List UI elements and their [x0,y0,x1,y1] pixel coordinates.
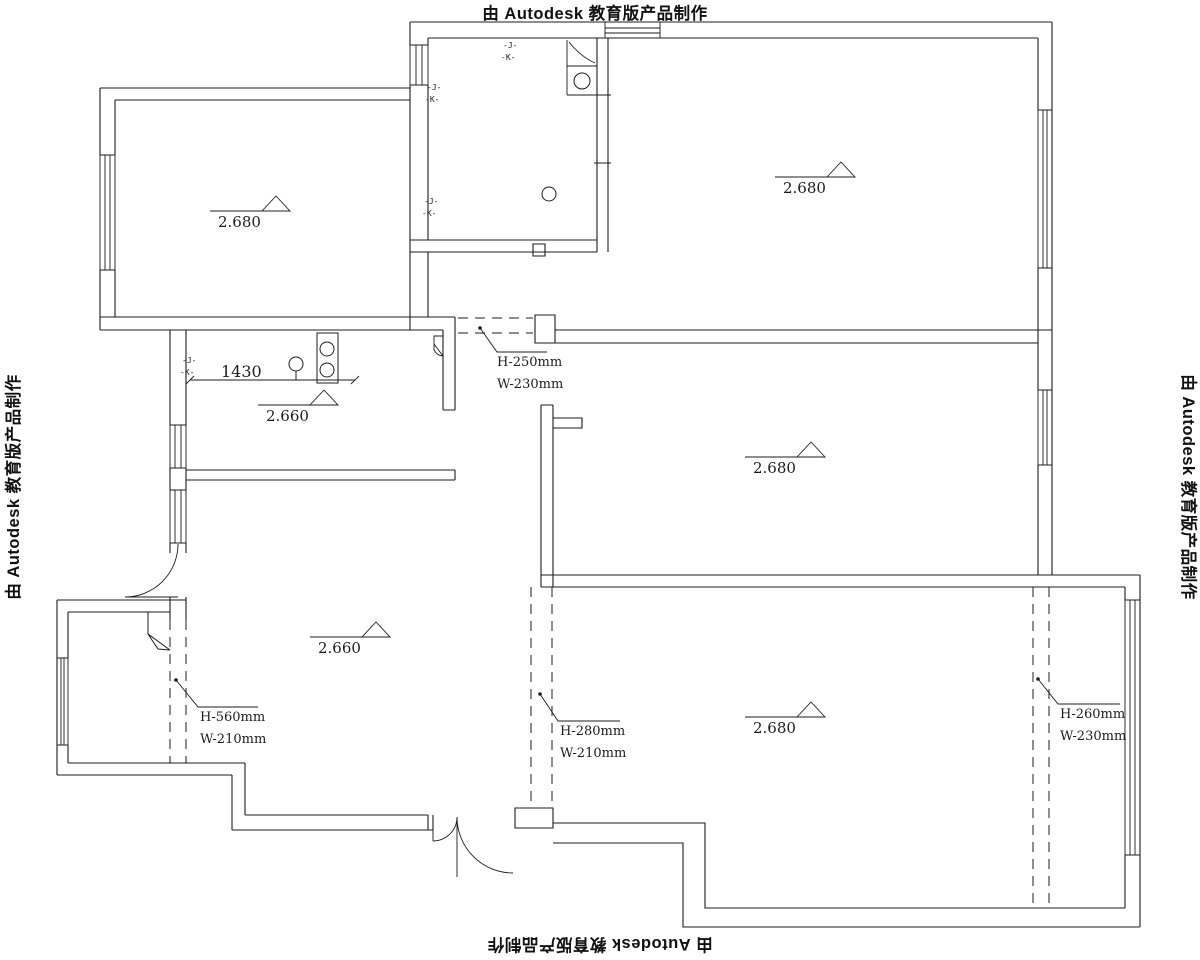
beam-width-label: W-230mm [497,377,563,392]
window-top-left-room [100,155,115,270]
level-mark-kitchen: 2.660 [258,390,338,425]
micro-mark: -J- [503,41,517,50]
doors [125,40,597,877]
level-value: 2.680 [783,179,826,197]
autodesk-credits: 由 Autodesk 教育版产品制作 由 Autodesk 教育版产品制作 由 … [3,3,1199,955]
beam-height-label: H-560mm [200,710,265,725]
door-jamb-detail [434,336,443,356]
beam-bedroom-right-dash [1033,587,1049,908]
credit-right: 由 Autodesk 教育版产品制作 [1179,374,1199,599]
beam-width-label: W-230mm [1060,729,1126,744]
washer-icon [574,73,590,89]
door-kitchen-corner-icon [567,40,597,95]
window-bottom-right [1125,600,1140,855]
dimension-value: 1430 [221,362,262,381]
micro-mark: -K- [501,53,515,62]
credit-left: 由 Autodesk 教育版产品制作 [3,374,23,599]
level-mark-top-left: 2.680 [210,196,290,231]
credit-top: 由 Autodesk 教育版产品制作 [482,3,707,23]
door-entry-swing-icon [433,817,513,877]
stove-burner-icon [320,342,334,356]
micro-mark: -J- [182,356,196,365]
level-triangle-icon [797,702,825,717]
window-living-left-1 [170,425,186,468]
level-value: 2.660 [318,639,361,657]
level-value: 2.660 [266,407,309,425]
level-mark-living: 2.660 [310,622,390,657]
wall-block-passage [535,315,555,343]
micro-mark: -J- [424,197,438,206]
credit-bottom: 由 Autodesk 教育版产品制作 [487,935,712,955]
window-living-left-2 [170,490,186,543]
beam-height-label: H-260mm [1060,707,1125,722]
stove-burner-icon [320,363,334,377]
level-mark-bottom-right: 2.680 [745,702,825,737]
leader-line [480,328,547,352]
beam-label-balcony: H-560mm W-210mm [174,678,266,747]
beam-passage-dash [458,318,533,333]
wall-lines-main [57,22,1140,927]
level-mark-top-right: 2.680 [775,162,855,197]
level-triangle-icon [362,622,390,637]
wall-block-entry-step [515,808,553,828]
level-triangle-icon [262,196,290,211]
micro-mark: -K- [180,368,194,377]
balcony-corner-fold [148,612,170,650]
level-triangle-icon [827,162,855,177]
beam-width-label: W-210mm [200,732,266,747]
beam-label-passage: H-250mm W-230mm [478,326,563,392]
window-right-middle [1038,390,1052,465]
level-value: 2.680 [218,213,261,231]
level-triangle-icon [797,442,825,457]
beam-label-living-bedroom: H-280mm W-210mm [538,692,626,761]
beam-balcony-dash [170,620,186,763]
window-right-upper [1038,110,1052,268]
beam-living-bedroom-dash [531,587,552,808]
window-kitchen-left [410,45,428,85]
level-value: 2.680 [753,459,796,477]
micro-mark: -J- [427,83,441,92]
leader-line [176,680,258,707]
level-triangle-icon [310,390,338,405]
level-mark-mid-right: 2.680 [745,442,825,477]
window-balcony-left [57,658,68,745]
sink-icon [289,357,303,371]
beam-height-label: H-280mm [560,724,625,739]
walls [57,22,1140,927]
leader-line [1038,679,1120,704]
beam-width-label: W-210mm [560,746,626,761]
micro-mark: -K- [422,209,436,218]
floor-plan-page: 2.680 2.680 2.680 2.680 2.660 2.660 H-25… [0,0,1200,960]
micro-mark: -K- [425,95,439,104]
beam-height-label: H-250mm [497,355,562,370]
stove-icon [317,333,338,383]
window-top-wall [605,22,660,38]
floor-drain-icon [542,187,556,201]
floor-plan-canvas: 2.680 2.680 2.680 2.680 2.660 2.660 H-25… [0,0,1200,960]
level-value: 2.680 [753,719,796,737]
wall-tab-kitchen-sill [533,244,545,256]
micro-marks: -J- -K- -J- -K- -J- -K- -J- -K- [180,41,517,377]
beam-label-bedroom-right: H-260mm W-230mm [1036,677,1126,744]
